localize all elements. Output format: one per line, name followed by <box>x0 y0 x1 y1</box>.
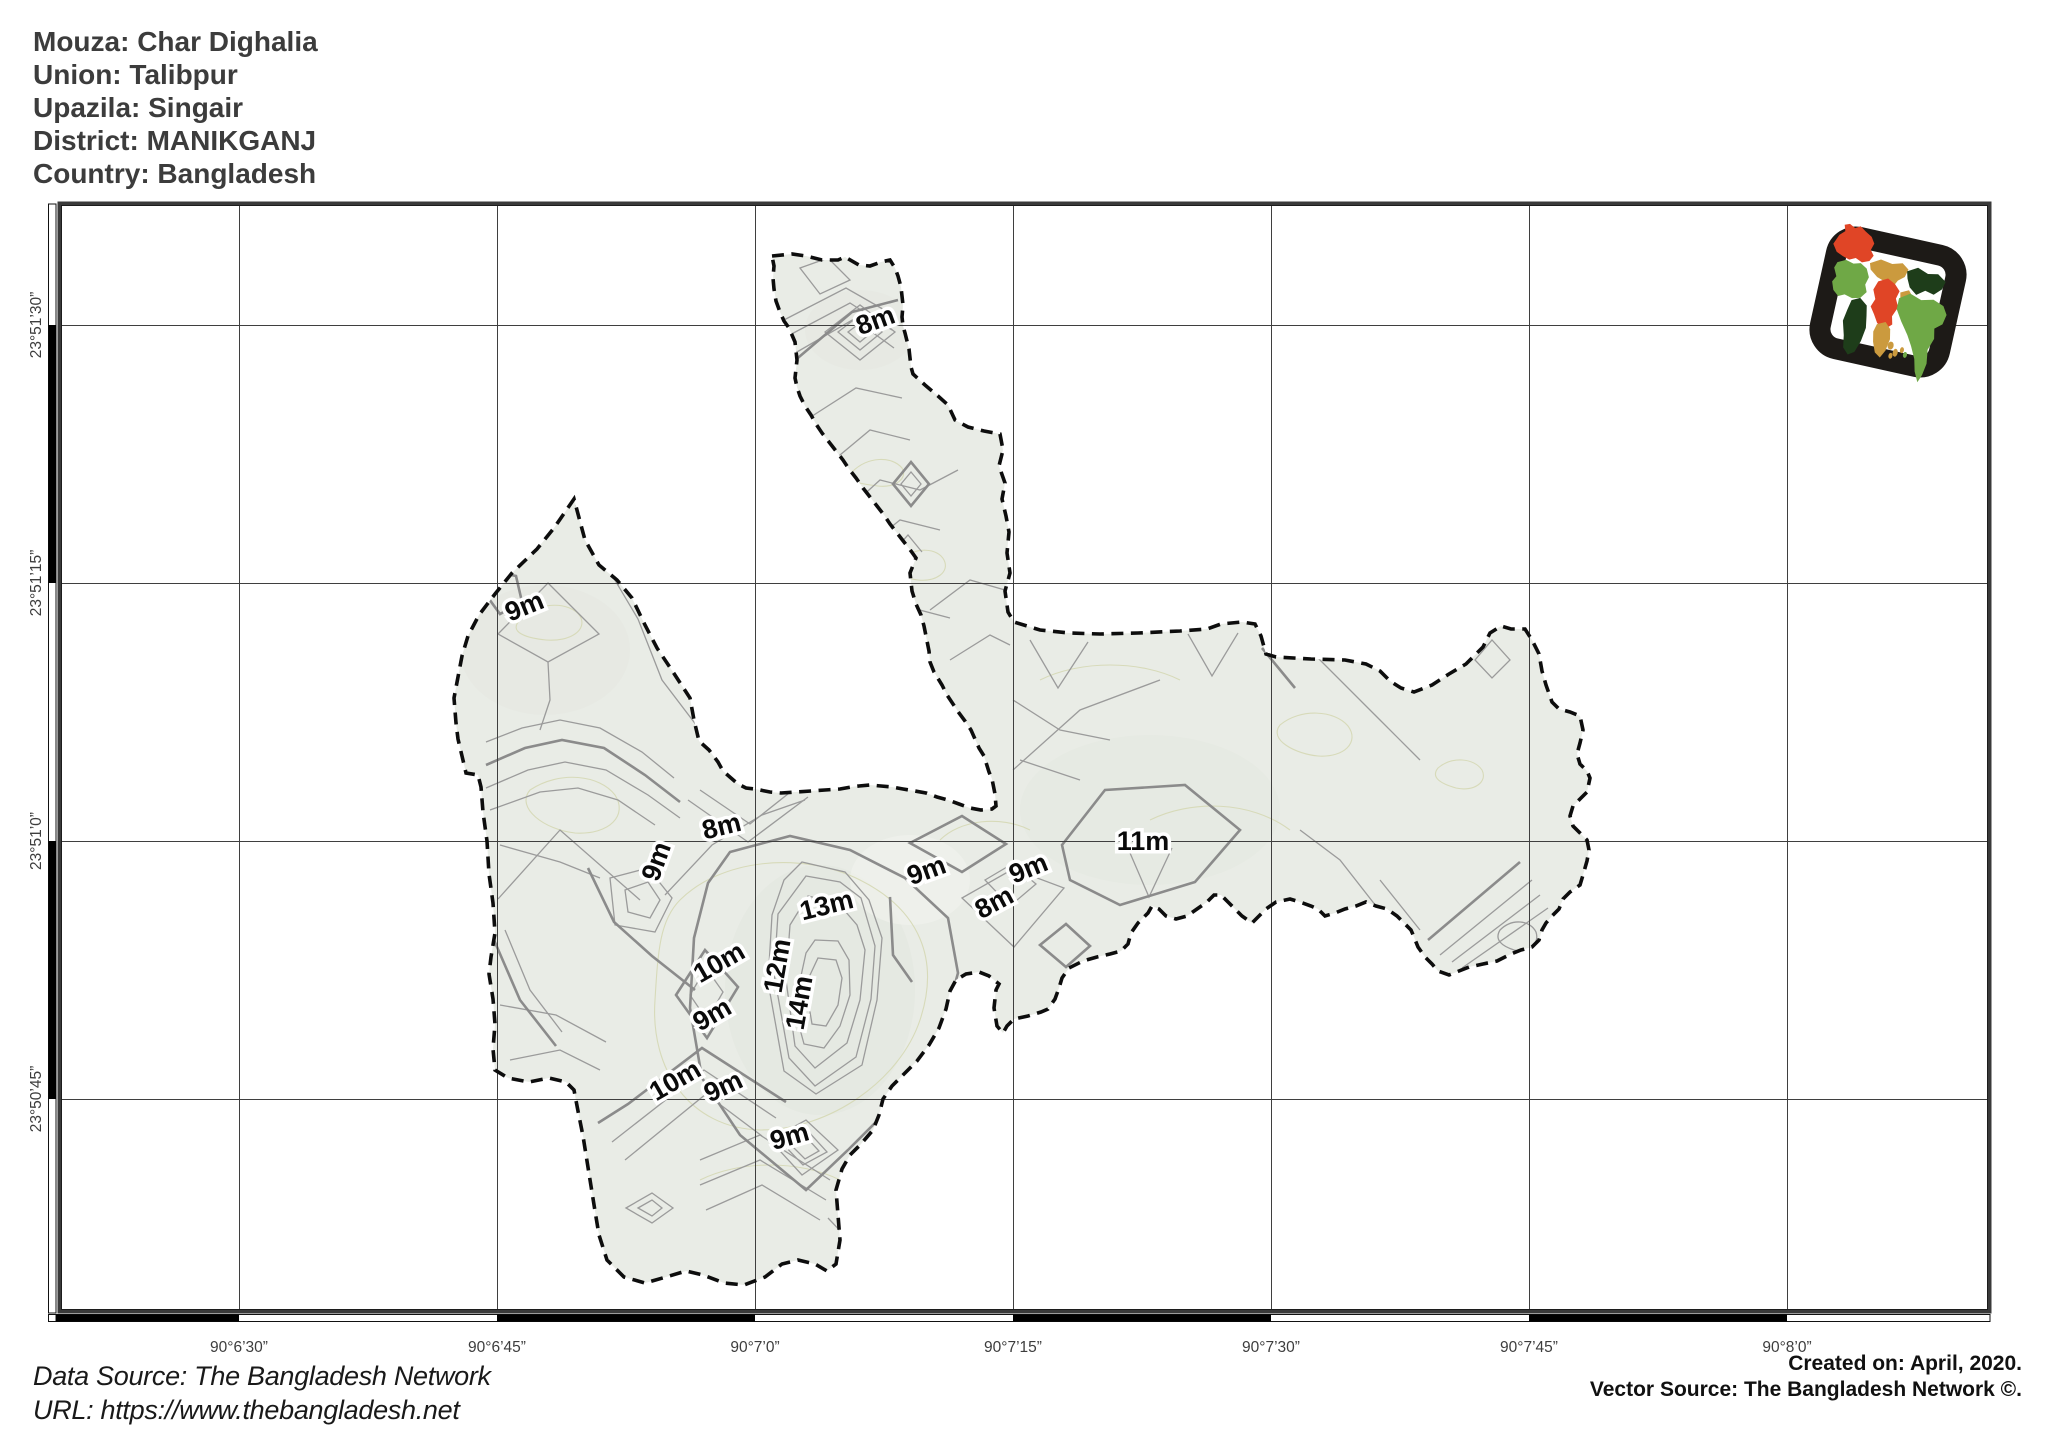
svg-text:Mouza: Char Dighalia: Mouza: Char Dighalia <box>33 26 318 57</box>
svg-text:11m: 11m <box>1117 826 1170 856</box>
svg-text:90°7’0”: 90°7’0” <box>730 1339 779 1356</box>
svg-text:90°6’45”: 90°6’45” <box>468 1339 526 1356</box>
svg-text:90°7’30”: 90°7’30” <box>1242 1339 1300 1356</box>
svg-text:90°7’15”: 90°7’15” <box>984 1339 1042 1356</box>
svg-text:Union: Talibpur: Union: Talibpur <box>33 59 238 90</box>
svg-text:Created on: April, 2020.: Created on: April, 2020. <box>1788 1352 2022 1375</box>
svg-text:23°51’0”: 23°51’0” <box>28 812 45 870</box>
svg-text:23°50’45”: 23°50’45” <box>28 1066 45 1133</box>
svg-text:Upazila: Singair: Upazila: Singair <box>33 92 243 123</box>
svg-text:URL: https://www.thebangladesh: URL: https://www.thebangladesh.net <box>33 1395 461 1425</box>
svg-text:23°51’30”: 23°51’30” <box>28 292 45 359</box>
svg-text:District: MANIKGANJ: District: MANIKGANJ <box>33 125 316 156</box>
svg-text:90°7’45”: 90°7’45” <box>1500 1339 1558 1356</box>
svg-text:Country: Bangladesh: Country: Bangladesh <box>33 158 316 189</box>
svg-text:Vector Source: The Bangladesh: Vector Source: The Bangladesh Network ©. <box>1590 1378 2022 1401</box>
svg-text:Data Source: The Bangladesh Ne: Data Source: The Bangladesh Network <box>33 1361 493 1391</box>
svg-text:90°6’30”: 90°6’30” <box>210 1339 268 1356</box>
svg-text:23°51’15”: 23°51’15” <box>28 550 45 617</box>
